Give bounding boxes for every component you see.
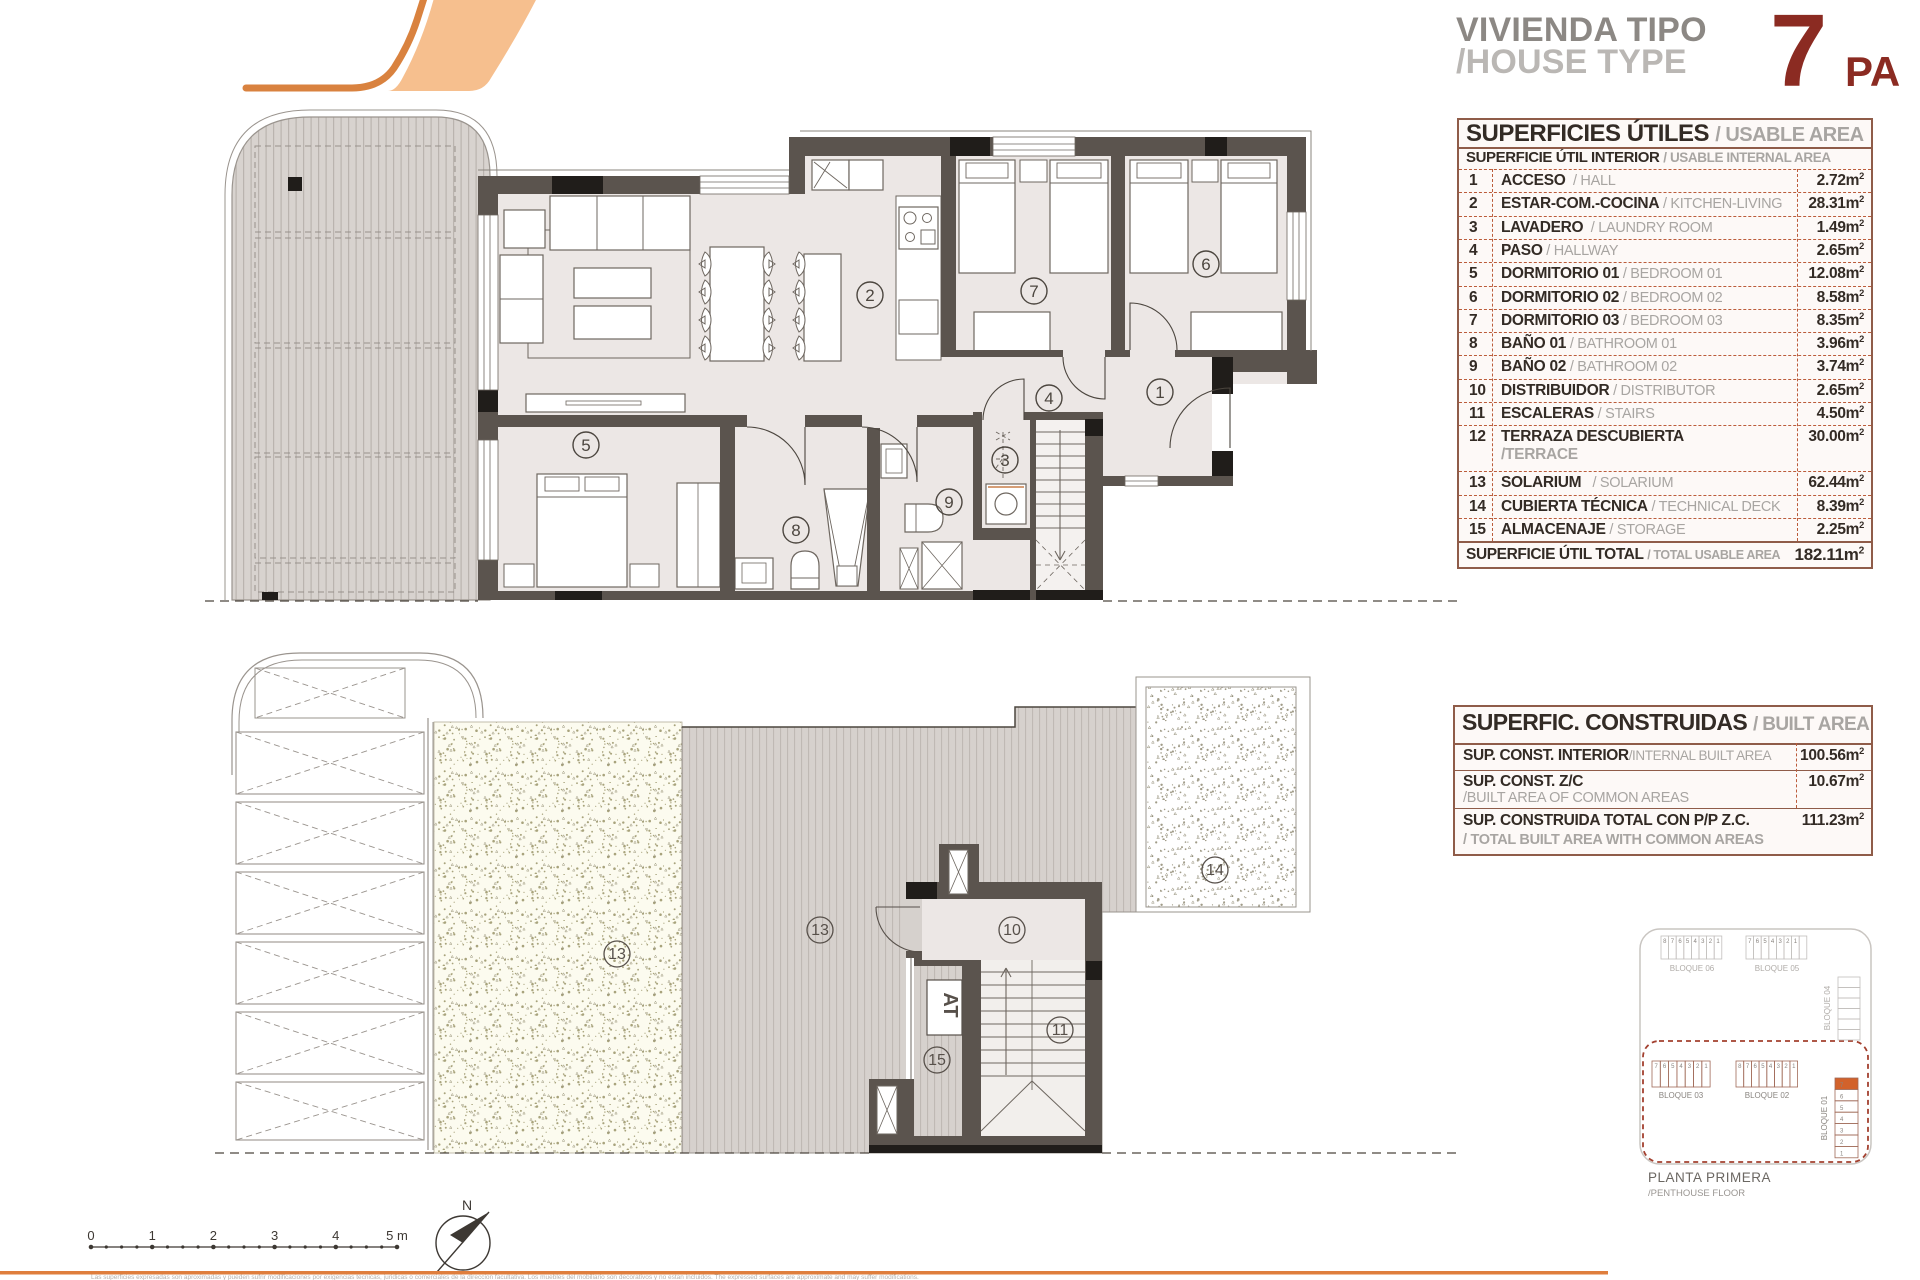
svg-text:4: 4 [1840,1117,1844,1123]
svg-text:2: 2 [1840,1140,1844,1146]
svg-text:15: 15 [928,1052,946,1069]
svg-text:5: 5 [1671,1064,1675,1070]
svg-text:7: 7 [1748,939,1752,945]
svg-text:BLOQUE 01: BLOQUE 01 [1820,1095,1829,1140]
svg-text:5: 5 [1840,1106,1844,1112]
svg-text:8: 8 [791,521,800,540]
svg-text:1: 1 [1794,939,1798,945]
svg-text:10: 10 [1003,922,1021,939]
svg-text:13: 13 [811,922,829,939]
svg-text:6: 6 [1678,939,1682,945]
svg-text:3: 3 [1000,451,1009,470]
svg-text:11: 11 [1052,1022,1069,1039]
svg-text:N: N [462,1197,472,1213]
svg-text:6: 6 [1663,1064,1667,1070]
svg-text:9: 9 [944,493,953,512]
svg-text:3: 3 [1777,1064,1781,1070]
svg-text:14: 14 [1206,862,1224,879]
svg-text:4: 4 [1044,389,1053,408]
svg-text:BLOQUE 02: BLOQUE 02 [1745,1091,1790,1100]
svg-text:BLOQUE 03: BLOQUE 03 [1659,1091,1704,1100]
svg-text:3: 3 [1779,939,1783,945]
svg-text:BLOQUE 05: BLOQUE 05 [1755,964,1800,973]
svg-text:BLOQUE 06: BLOQUE 06 [1670,964,1715,973]
svg-text:7: 7 [1671,939,1675,945]
svg-text:PLANTA PRIMERA: PLANTA PRIMERA [1648,1170,1771,1185]
svg-text:5 m: 5 m [386,1228,408,1243]
svg-text:6: 6 [1840,1094,1844,1100]
svg-text:5: 5 [1761,1064,1765,1070]
svg-text:7: 7 [1029,282,1038,301]
svg-text:Las superficies expresadas son: Las superficies expresadas son aproximad… [91,1274,919,1280]
svg-text:6: 6 [1756,939,1760,945]
svg-text:2: 2 [1696,1064,1700,1070]
svg-text:4: 4 [1679,1064,1683,1070]
svg-text:6: 6 [1201,255,1210,274]
svg-text:4: 4 [1769,1064,1773,1070]
svg-text:1: 1 [1716,939,1720,945]
svg-text:0: 0 [87,1228,94,1243]
svg-text:3: 3 [1688,1064,1692,1070]
svg-text:2: 2 [1786,939,1790,945]
svg-text:5: 5 [1686,939,1690,945]
svg-text:8: 8 [1738,1064,1742,1070]
svg-text:3: 3 [1701,939,1705,945]
svg-text:4: 4 [1694,939,1698,945]
svg-text:2: 2 [1784,1064,1788,1070]
svg-text:1: 1 [149,1228,156,1243]
svg-text:2: 2 [865,286,874,305]
svg-text:BLOQUE 04: BLOQUE 04 [1823,985,1832,1030]
svg-text:7: 7 [1746,1064,1750,1070]
svg-text:1: 1 [1155,383,1164,402]
svg-text:/PENTHOUSE FLOOR: /PENTHOUSE FLOOR [1648,1188,1745,1199]
svg-text:1: 1 [1704,1064,1708,1070]
svg-text:8: 8 [1663,939,1667,945]
svg-text:13: 13 [608,946,626,963]
svg-text:6: 6 [1754,1064,1758,1070]
svg-text:5: 5 [581,436,590,455]
svg-text:4: 4 [1771,939,1775,945]
svg-text:AT: AT [939,992,961,1017]
svg-text:1: 1 [1840,1151,1844,1157]
svg-text:2: 2 [1709,939,1713,945]
svg-text:5: 5 [1763,939,1767,945]
svg-text:3: 3 [1840,1129,1844,1135]
svg-text:2: 2 [210,1228,217,1243]
svg-text:4: 4 [332,1228,339,1243]
svg-text:1: 1 [1792,1064,1796,1070]
svg-text:3: 3 [271,1228,278,1243]
svg-text:7: 7 [1655,1064,1659,1070]
